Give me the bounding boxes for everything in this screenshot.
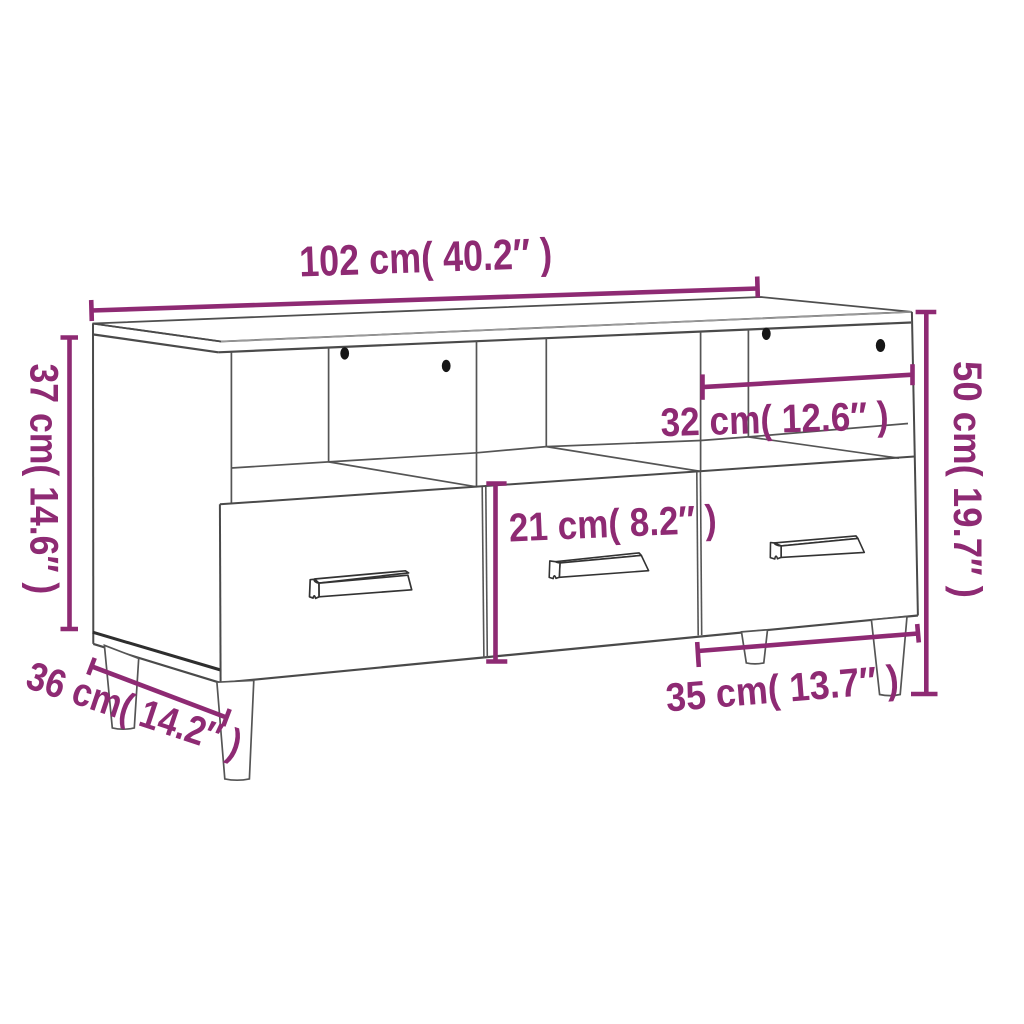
svg-text:32 cm( 12.6″ ): 32 cm( 12.6″ ) [660, 393, 889, 445]
svg-text:37 cm( 14.6″ ): 37 cm( 14.6″ ) [21, 364, 65, 595]
svg-text:102 cm( 40.2″ ): 102 cm( 40.2″ ) [298, 230, 552, 287]
svg-text:21 cm( 8.2″ ): 21 cm( 8.2″ ) [508, 496, 718, 550]
svg-text:50 cm( 19.7″ ): 50 cm( 19.7″ ) [945, 361, 990, 598]
